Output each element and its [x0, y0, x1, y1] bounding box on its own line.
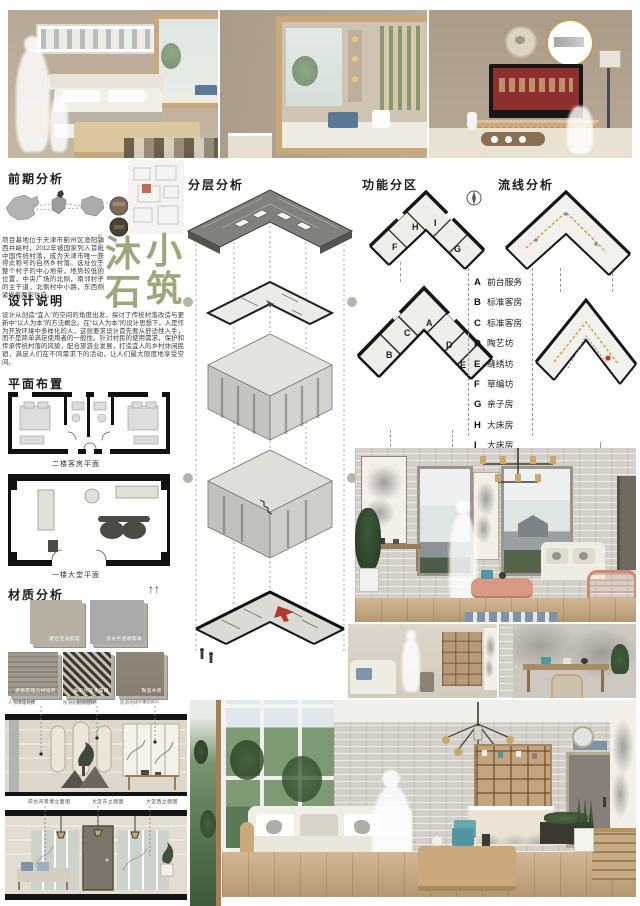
room-letter: A — [426, 318, 433, 328]
elevation-annotation-2: 木饰面格栅 — [76, 699, 97, 705]
elevation-caption-1: 前台背景墙立面图 — [28, 798, 70, 805]
room-letter: E — [460, 360, 466, 370]
round-art-large — [545, 18, 595, 68]
red-seal-icon — [142, 184, 151, 193]
floor-lamp — [607, 60, 610, 130]
luggage — [420, 672, 434, 692]
elevation-lobby-1 — [5, 706, 187, 796]
room-letter: G — [454, 244, 461, 254]
material-swatch-2: 亮光半透明玻璃 — [90, 600, 144, 644]
plant-left — [355, 508, 381, 572]
material-swatch-5: 陶瓷木砖 — [116, 652, 164, 696]
brick-edge — [499, 624, 513, 698]
doorway-right — [617, 476, 636, 570]
elevation-caption-2: 大堂东立面图 — [92, 798, 124, 805]
foreground-table — [429, 128, 632, 158]
title-subtitle: 传统村落民宿设计 — [96, 234, 103, 282]
tea-tray — [481, 132, 545, 146]
floorplan-second-floor — [8, 392, 170, 454]
rendering-lobby-courtyard — [355, 448, 636, 622]
location-map-diagram — [2, 190, 130, 238]
room-letter: D — [446, 340, 453, 350]
round-art-small — [505, 26, 537, 58]
dashed-guide — [468, 268, 469, 436]
ghost-figure-child — [50, 96, 68, 152]
display-shelf — [442, 632, 482, 686]
ghost-head — [406, 630, 416, 640]
rattan-chair — [551, 674, 583, 698]
ghost-figure — [567, 106, 593, 154]
rendering-baywindow-room — [220, 10, 427, 158]
room-letter: B — [386, 350, 393, 360]
legend-row: D陶艺坊 — [474, 333, 532, 353]
coffee-table — [418, 846, 516, 891]
arched-panels — [51, 722, 111, 776]
ghost-figure-adult — [16, 48, 50, 152]
province-map-icon — [52, 196, 66, 214]
title-char-zhu: 筑 — [146, 271, 182, 307]
planter-pot — [359, 568, 379, 592]
elevation-annotation-1: 白色文化砖 — [14, 699, 35, 705]
coffee-table — [471, 578, 533, 599]
ghost-figure — [402, 638, 420, 692]
curtain — [380, 26, 424, 110]
elevation-lobby-2 — [5, 806, 187, 900]
ghost-head — [456, 500, 470, 514]
design-body-text: 设计从创造“宜人”的空间的角度出发，探讨了传统村落改造与更新中“以人为本”的方法… — [2, 312, 184, 367]
bay-niche — [276, 16, 427, 154]
rendering-courtyard-strip — [190, 700, 221, 906]
plan-caption-1f: 一楼大堂平面 — [52, 570, 100, 580]
legend-row: H大床房 — [474, 415, 532, 435]
scale-figure-icons — [200, 648, 213, 663]
tv — [489, 64, 583, 118]
ghost-head — [24, 36, 40, 52]
material-swatch-1: 硬包亚光肌理 — [30, 600, 82, 644]
county-map-icon — [81, 196, 104, 216]
roof-layer — [188, 190, 352, 254]
floorplan-first-floor — [8, 474, 170, 566]
shelf-lights — [348, 30, 362, 102]
second-floor-volume-layer — [208, 334, 332, 440]
dashed-guide — [390, 430, 391, 447]
preliminary-body-text: 项目基地位于天津市蓟州区渔阳镇西井峪村，2012年被国家列入首批中国传统村落，成… — [2, 237, 104, 299]
room-letter: I — [434, 218, 437, 228]
elevation-caption-3: 大堂西立面图 — [146, 798, 178, 805]
legend-row: F草编坊 — [474, 374, 532, 394]
rendering-lounge-shelf — [348, 624, 497, 698]
village-plan-sketch — [128, 160, 184, 234]
rendering-lobby-main — [222, 700, 636, 897]
legend-row: A前台服务 — [474, 272, 532, 292]
dashed-guide — [452, 430, 453, 447]
white-planter — [574, 828, 594, 852]
section-title-preliminary: 前期分析 — [8, 170, 64, 187]
zoning-plan-2f: F H I G — [362, 186, 492, 286]
room-letter: H — [412, 222, 419, 232]
rendering-living-tv — [429, 10, 632, 158]
display-cabinet — [474, 744, 552, 810]
legend-row: G亲子房 — [474, 394, 532, 414]
bay-window — [154, 14, 218, 108]
exploded-axonometric — [182, 182, 358, 702]
tea-desk — [523, 664, 609, 670]
dashed-guide — [560, 268, 561, 292]
ink-screens — [123, 724, 179, 776]
legend-row: B标准客房 — [474, 292, 532, 312]
wallpaper-strip — [484, 628, 497, 690]
material-swatch-4: 编织纹理金属网 — [63, 652, 111, 696]
title-char-shi: 石 — [105, 274, 141, 310]
rug — [465, 612, 557, 622]
legend-row: C标准客房 — [474, 313, 532, 333]
round-mirror — [572, 726, 594, 748]
plant — [611, 644, 629, 674]
section-title-design: 设计说明 — [8, 292, 64, 309]
design-board: 前期分析 项目基地位于天津市蓟州区渔阳镇西井峪村，2012年被国家列入首批中国传… — [0, 0, 640, 906]
room-letter: C — [404, 328, 411, 338]
glass-partition-right — [117, 830, 169, 890]
entry-point-marker — [605, 355, 610, 360]
dashed-guide — [612, 268, 613, 292]
circulation-plan-1f — [532, 292, 640, 442]
chandelier-icon — [473, 448, 563, 498]
rendering-tea-desk — [499, 624, 636, 698]
title-char-xiao: 小 — [146, 233, 182, 269]
scale-figures-icon: ↑↑ — [148, 582, 160, 596]
plan-caption-2f: 二楼客房平面 — [52, 459, 100, 469]
title-char-mu: 沐 — [105, 236, 141, 272]
niche-window — [286, 28, 342, 106]
dashed-guide — [400, 262, 401, 282]
first-floor-plan-layer — [196, 592, 344, 644]
room-letter: F — [392, 242, 398, 252]
side-table — [228, 133, 272, 158]
china-map-icon — [6, 195, 39, 220]
rug — [124, 138, 218, 158]
elevation-annotation-3: 水墨画屏风 — [138, 699, 159, 705]
wallpaper-right — [610, 706, 636, 842]
window-seat — [282, 122, 427, 148]
compass-icon — [467, 191, 481, 205]
first-floor-volume-layer — [208, 450, 332, 558]
wall-artwork — [36, 24, 158, 54]
vase-flowers — [467, 112, 477, 130]
section-title-plan-layout: 平面布置 — [8, 375, 64, 392]
rendering-bedroom — [8, 10, 218, 158]
zone-legend: A前台服务 B标准客房 C标准客房 D陶艺坊 E缝绣坊 F草编坊 G亲子房 H大… — [474, 272, 532, 456]
cushion — [356, 668, 372, 680]
dashed-guide — [532, 268, 533, 436]
legend-row: E缝绣坊 — [474, 354, 532, 374]
console-right — [592, 828, 636, 880]
ghost-head — [382, 770, 400, 788]
material-swatch-3: 硬质肌理石材墙砖 — [8, 652, 58, 696]
